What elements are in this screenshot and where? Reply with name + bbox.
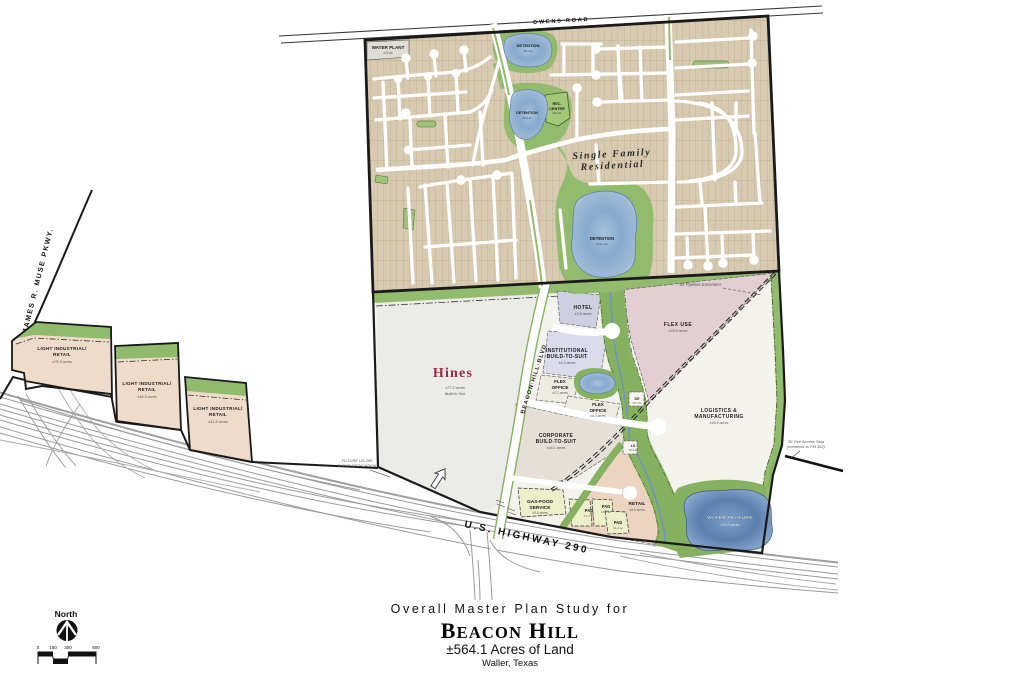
svg-text:±13.8 acres: ±13.8 acres xyxy=(208,420,228,424)
svg-text:FLEX: FLEX xyxy=(554,379,567,384)
svg-text:±29.9 acres: ±29.9 acres xyxy=(669,329,688,333)
svg-text:600: 600 xyxy=(92,645,100,650)
svg-text:Build to Suit: Build to Suit xyxy=(445,392,466,396)
svg-text:RETAIL: RETAIL xyxy=(209,412,227,417)
svg-text:MANUFACTURING: MANUFACTURING xyxy=(694,414,743,420)
svg-text:300: 300 xyxy=(64,645,72,650)
svg-text:GAS-FOOD: GAS-FOOD xyxy=(527,499,553,505)
svg-text:Overall Master Plan Study for: Overall Master Plan Study for xyxy=(391,602,630,616)
svg-text:DETENTION: DETENTION xyxy=(516,43,539,48)
svg-text:FLEX USE: FLEX USE xyxy=(664,322,693,328)
svg-text:±2.7 acres: ±2.7 acres xyxy=(552,391,568,395)
svg-text:±8.1 ac: ±8.1 ac xyxy=(523,49,533,53)
svg-text:PAD: PAD xyxy=(614,520,623,525)
svg-text:±10.0 acres: ±10.0 acres xyxy=(721,523,740,527)
svg-text:REC.: REC. xyxy=(552,102,561,106)
svg-text:LIGHT INDUSTRIAL/: LIGHT INDUSTRIAL/ xyxy=(37,346,87,351)
svg-text:±3.9 acres: ±3.9 acres xyxy=(575,312,592,316)
svg-text:PAD: PAD xyxy=(602,504,611,509)
svg-text:LIGHT INDUSTRIAL/: LIGHT INDUSTRIAL/ xyxy=(122,381,172,386)
svg-text:BUILD-TO-SUIT: BUILD-TO-SUIT xyxy=(547,354,588,360)
svg-text:±36.1 acres: ±36.1 acres xyxy=(547,446,566,450)
svg-text:±1.2 ac: ±1.2 ac xyxy=(584,514,594,518)
svg-text:±0.7 ac: ±0.7 ac xyxy=(632,401,642,405)
svg-text:RETAIL: RETAIL xyxy=(53,352,71,357)
svg-text:±3.5 acres: ±3.5 acres xyxy=(532,511,548,515)
svg-text:OFFICE: OFFICE xyxy=(590,408,607,413)
svg-text:±0.9 ac: ±0.9 ac xyxy=(628,448,638,452)
svg-text:±77.2 acres: ±77.2 acres xyxy=(445,386,465,390)
svg-text:±3.2 ac: ±3.2 ac xyxy=(552,111,562,115)
svg-text:±19.1 ac: ±19.1 ac xyxy=(596,242,608,246)
svg-text:FLEX: FLEX xyxy=(592,402,605,407)
svg-text:LIGHT INDUSTRIAL/: LIGHT INDUSTRIAL/ xyxy=(193,406,243,411)
svg-text:PAD: PAD xyxy=(585,508,594,513)
svg-text:±1.3 ac: ±1.3 ac xyxy=(601,510,611,514)
svg-text:±4.3 acres: ±4.3 acres xyxy=(590,414,606,418)
svg-text:Waller, Texas: Waller, Texas xyxy=(482,658,538,669)
svg-text:±95.9 acres: ±95.9 acres xyxy=(710,421,729,425)
svg-text:±6.3 acres: ±6.3 acres xyxy=(559,361,576,365)
svg-text:(connects to FM 362): (connects to FM 362) xyxy=(787,444,825,449)
svg-text:BUILD-TO-SUIT: BUILD-TO-SUIT xyxy=(536,439,577,445)
svg-text:DETENTION: DETENTION xyxy=(590,236,614,241)
svg-text:RETAIL: RETAIL xyxy=(629,501,646,507)
svg-text:±1.2 ac: ±1.2 ac xyxy=(613,526,623,530)
svg-text:±6.4 ac: ±6.4 ac xyxy=(522,116,532,120)
svg-text:±9.9 acres: ±9.9 acres xyxy=(629,508,645,512)
svg-text:±19.9 acres: ±19.9 acres xyxy=(137,395,157,399)
svg-text:WATER FEATURE: WATER FEATURE xyxy=(707,515,753,521)
svg-text:50' Pipeline Easement: 50' Pipeline Easement xyxy=(679,282,721,287)
svg-text:R.O.W. DEDICATION: R.O.W. DEDICATION xyxy=(338,463,377,468)
svg-text:HOTEL: HOTEL xyxy=(574,305,593,311)
svg-text:±75.3 acres: ±75.3 acres xyxy=(52,360,72,364)
svg-text:WATER PLANT: WATER PLANT xyxy=(372,45,405,50)
svg-text:North: North xyxy=(55,609,78,619)
svg-text:150: 150 xyxy=(49,645,57,650)
svg-text:RETAIL: RETAIL xyxy=(138,387,156,392)
svg-text:±564.1 Acres of Land: ±564.1 Acres of Land xyxy=(446,642,574,657)
svg-text:DETENTION: DETENTION xyxy=(516,111,538,115)
svg-text:Hines: Hines xyxy=(433,366,473,381)
svg-text:±10 ac: ±10 ac xyxy=(383,51,393,55)
svg-text:OFFICE: OFFICE xyxy=(552,385,569,390)
